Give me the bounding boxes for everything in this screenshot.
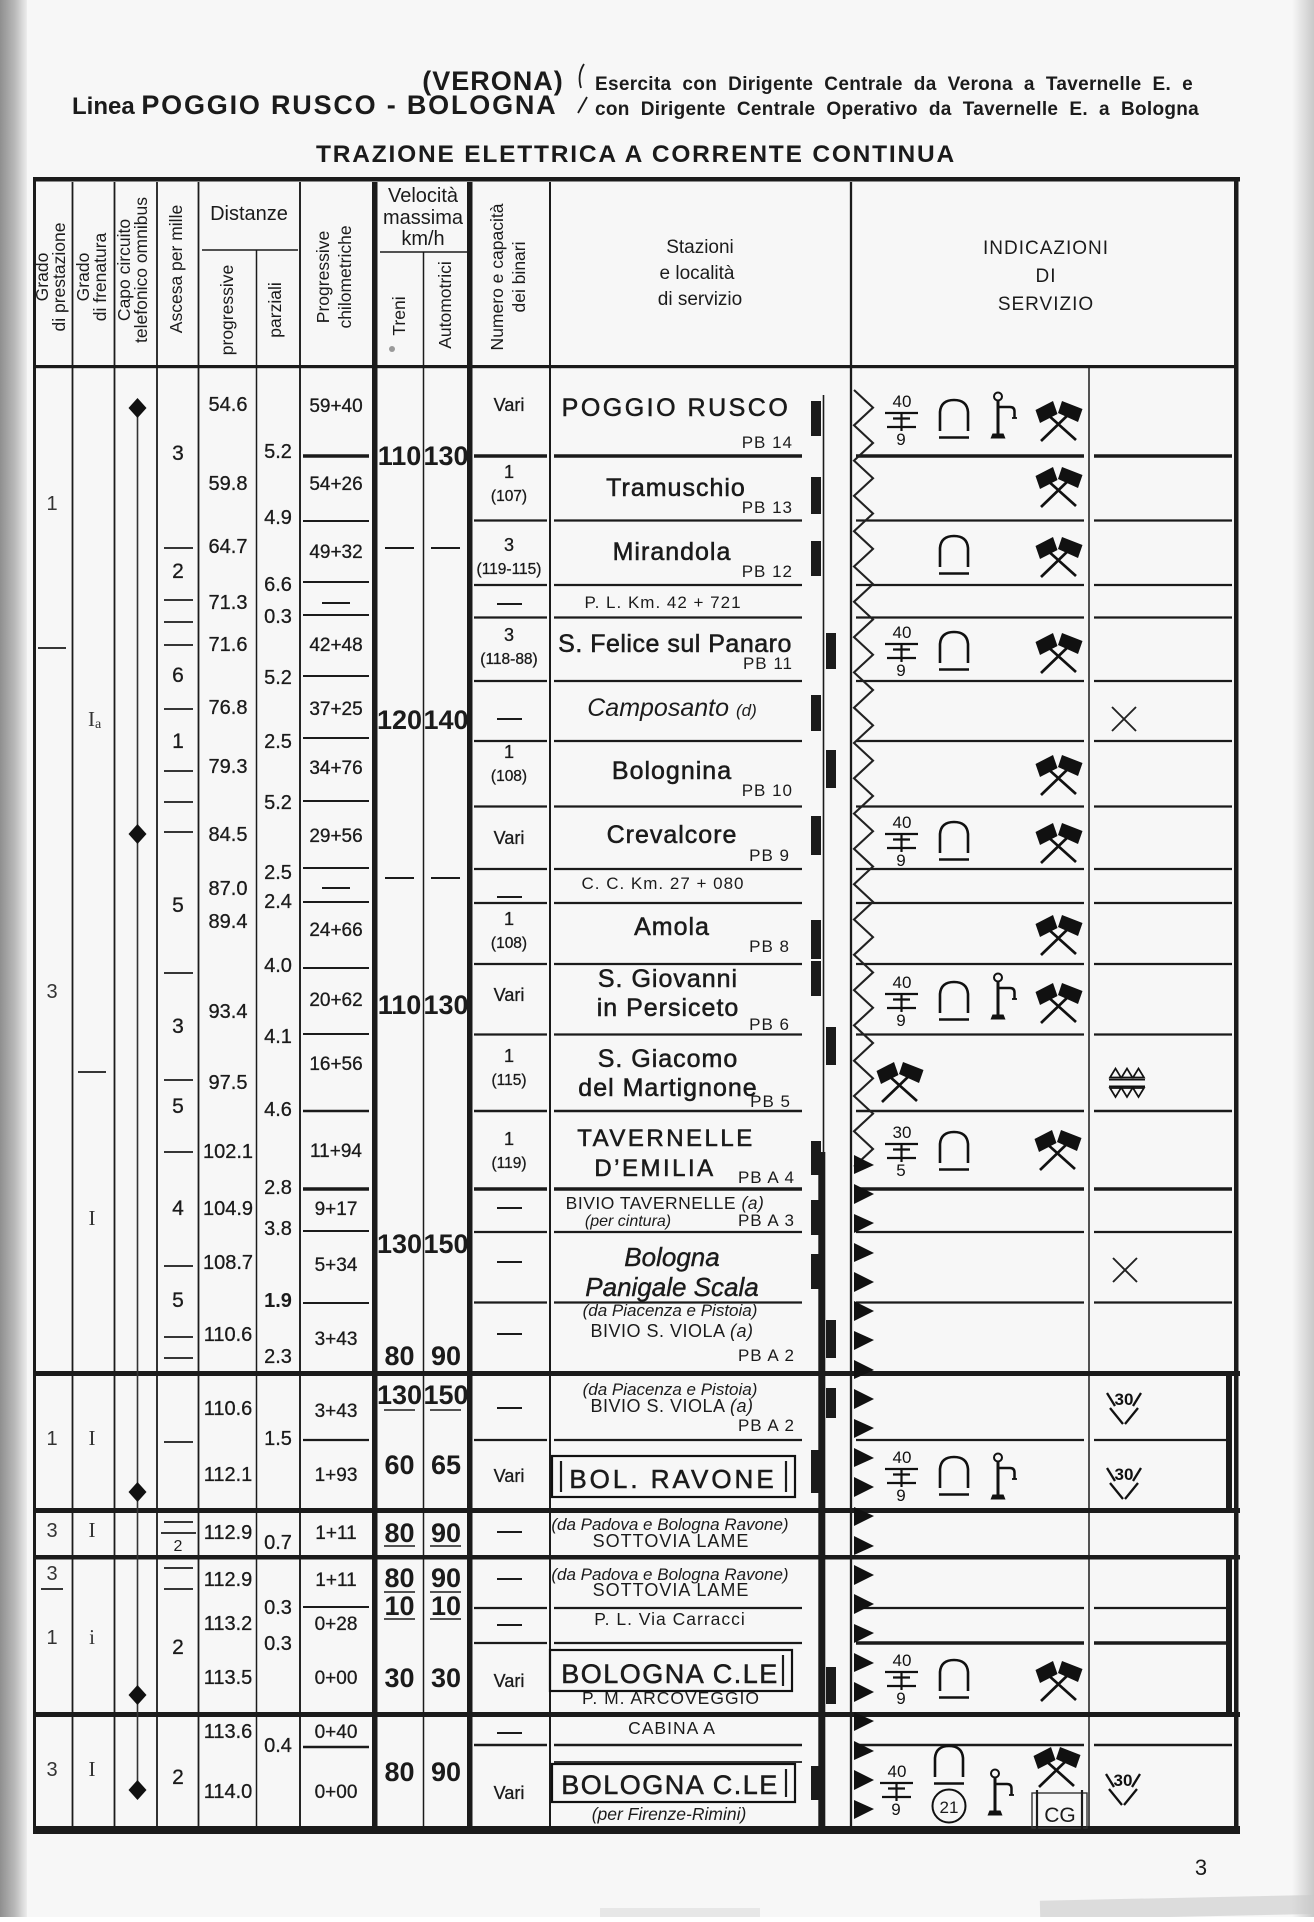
svg-text:2.8: 2.8 [264,1177,292,1199]
svg-text:Panigale Scala: Panigale Scala [585,1272,758,1302]
svg-text:20+62: 20+62 [309,990,362,1011]
svg-text:1.5: 1.5 [264,1428,292,1450]
svg-text:Stazioni: Stazioni [666,237,734,258]
svg-text:1+11: 1+11 [315,1570,356,1591]
svg-text:3: 3 [172,1015,184,1038]
svg-text:progressive: progressive [217,265,237,355]
svg-text:1: 1 [504,1129,514,1149]
svg-text:Vari: Vari [494,985,525,1005]
svg-text:90: 90 [431,1757,461,1787]
svg-text:112.9: 112.9 [204,1522,253,1544]
svg-text:0+28: 0+28 [315,1614,358,1635]
svg-text:2: 2 [172,560,184,583]
svg-text:S. Giacomo: S. Giacomo [598,1045,739,1073]
svg-text:34+76: 34+76 [309,758,362,779]
svg-text:3: 3 [46,1759,57,1781]
svg-text:dei binari: dei binari [509,241,529,312]
svg-text:(per Firenze-Rimini): (per Firenze-Rimini) [592,1804,747,1824]
svg-text:BOL. RAVONE: BOL. RAVONE [569,1464,776,1494]
svg-text:0.7: 0.7 [264,1532,292,1554]
svg-text:113.6: 113.6 [204,1721,253,1743]
svg-text:i: i [89,1625,95,1649]
svg-text:Numero e capacità: Numero e capacità [487,203,507,350]
svg-text:1: 1 [504,462,514,482]
svg-text:CABINA A: CABINA A [628,1718,716,1738]
svg-text:4.0: 4.0 [264,955,292,977]
svg-text:Vari: Vari [494,828,525,848]
svg-text:4.1: 4.1 [264,1026,292,1048]
svg-text:80: 80 [384,1341,414,1371]
svg-text:4: 4 [172,1197,184,1220]
svg-text:I: I [89,1426,96,1450]
svg-text:DI: DI [1036,266,1057,287]
svg-text:16+56: 16+56 [309,1054,362,1075]
svg-text:11+94: 11+94 [310,1141,362,1162]
svg-text:(da Piacenza e Pistoia): (da Piacenza e Pistoia) [583,1301,758,1320]
svg-text:130: 130 [423,990,468,1020]
svg-text:89.4: 89.4 [209,911,248,933]
svg-text:PB 13: PB 13 [742,498,793,517]
svg-text:PB A 2: PB A 2 [738,1346,795,1365]
svg-text:(107): (107) [491,488,527,505]
svg-text:114.0: 114.0 [204,1781,253,1803]
svg-text:5+34: 5+34 [315,1255,358,1276]
svg-text:Linea POGGIO RUSCO - BOLOGNA: Linea POGGIO RUSCO - BOLOGNA [72,90,557,120]
svg-text:P. M. ARCOVEGGIO: P. M. ARCOVEGGIO [582,1688,760,1708]
svg-text:PB A 3: PB A 3 [738,1211,795,1230]
svg-text:BIVIO S. VIOLA (a): BIVIO S. VIOLA (a) [590,1321,753,1341]
svg-text:Vari: Vari [494,395,525,415]
svg-text:3: 3 [172,442,184,465]
svg-text:BOLOGNA C.LE: BOLOGNA C.LE [561,1659,779,1689]
svg-text:Esercita con Dirigente Central: Esercita con Dirigente Centrale da Veron… [595,74,1193,95]
svg-text:71.3: 71.3 [209,592,248,614]
svg-text:37+25: 37+25 [309,699,362,720]
svg-text:PB 5: PB 5 [750,1092,791,1111]
svg-text:BOLOGNA C.LE: BOLOGNA C.LE [561,1770,779,1800]
svg-text:71.6: 71.6 [209,634,248,656]
svg-text:di prestazione: di prestazione [49,223,69,332]
svg-text:C. C. Km. 27 + 080: C. C. Km. 27 + 080 [581,874,744,893]
svg-text:INDICAZIONI: INDICAZIONI [983,238,1109,259]
svg-text:e località: e località [660,263,735,284]
svg-text:110: 110 [378,990,422,1020]
svg-text:S. Giovanni: S. Giovanni [598,965,738,993]
svg-text:90: 90 [431,1563,461,1593]
svg-text:1: 1 [172,730,184,753]
svg-text:49+32: 49+32 [309,542,362,563]
svg-text:SOTTOVIA LAME: SOTTOVIA LAME [593,1580,750,1600]
svg-text:5: 5 [172,1289,184,1312]
svg-text:2: 2 [172,1766,184,1789]
svg-text:10: 10 [431,1591,461,1621]
svg-text:0.4: 0.4 [264,1735,292,1757]
svg-text:PB A 4: PB A 4 [738,1168,795,1187]
svg-text:90: 90 [431,1518,461,1548]
svg-text:Velocità: Velocità [388,185,459,207]
svg-text:1: 1 [504,909,514,929]
svg-text:I: I [89,1518,96,1542]
svg-text:di servizio: di servizio [658,289,742,310]
svg-text:Vari: Vari [494,1671,525,1691]
svg-text:1: 1 [46,493,57,515]
svg-text:97.5: 97.5 [209,1072,248,1094]
svg-text:9+17: 9+17 [315,1199,358,1220]
svg-text:60: 60 [384,1450,414,1480]
svg-text:TAVERNELLE: TAVERNELLE [577,1125,755,1152]
svg-text:1+93: 1+93 [315,1465,358,1486]
svg-text:1+11: 1+11 [315,1523,356,1544]
svg-text:6.6: 6.6 [264,574,292,596]
svg-text:Vari: Vari [494,1466,525,1486]
svg-text:93.4: 93.4 [209,1001,248,1023]
svg-text:Progressive: Progressive [313,231,333,323]
svg-text:5.2: 5.2 [264,441,292,463]
svg-text:3+43: 3+43 [315,1401,358,1422]
svg-text:54+26: 54+26 [309,474,362,495]
svg-text:Distanze: Distanze [210,203,288,225]
svg-text:130: 130 [377,1380,422,1410]
svg-text:Mirandola: Mirandola [613,538,732,566]
svg-text:PB A 2: PB A 2 [738,1416,795,1435]
svg-text:P. L. Km. 42 + 721: P. L. Km. 42 + 721 [584,593,741,612]
svg-text:5: 5 [172,1095,184,1118]
svg-text:Camposanto (d): Camposanto (d) [587,694,756,722]
svg-text:113.5: 113.5 [204,1667,253,1689]
svg-text:3: 3 [46,1563,57,1585]
svg-text:BIVIO TAVERNELLE (a): BIVIO TAVERNELLE (a) [566,1193,765,1213]
svg-text:Automotrici: Automotrici [435,261,455,349]
svg-text:42+48: 42+48 [309,635,362,656]
svg-text:2: 2 [174,1538,183,1555]
svg-text:4.9: 4.9 [264,507,292,529]
svg-text:(119-115): (119-115) [477,561,542,578]
svg-text:130: 130 [377,1229,422,1259]
svg-text:(115): (115) [491,1072,526,1089]
svg-text:(per cintura): (per cintura) [585,1213,671,1230]
svg-text:SOTTOVIA LAME: SOTTOVIA LAME [593,1531,750,1551]
svg-text:3: 3 [46,981,57,1003]
svg-text:PB 10: PB 10 [742,781,793,800]
svg-text:I: I [89,1757,96,1781]
svg-text:80: 80 [384,1563,414,1593]
svg-text:79.3: 79.3 [209,756,248,778]
svg-text:2.3: 2.3 [264,1346,292,1368]
svg-text:Crevalcore: Crevalcore [607,821,738,849]
svg-text:2: 2 [172,1636,184,1659]
svg-text:120: 120 [377,705,422,735]
svg-text:2.4: 2.4 [264,891,292,913]
svg-text:110.6: 110.6 [204,1398,253,1420]
svg-text:I: I [89,1206,96,1230]
svg-text:PB 14: PB 14 [742,433,793,452]
svg-text:PB 6: PB 6 [749,1015,790,1034]
svg-text:in Persiceto: in Persiceto [597,994,740,1022]
svg-text:3: 3 [504,535,514,555]
svg-text:110: 110 [378,441,422,471]
svg-text:30: 30 [384,1663,414,1693]
svg-text:112.1: 112.1 [204,1464,253,1486]
svg-text:BIVIO S. VIOLA (a): BIVIO S. VIOLA (a) [590,1396,753,1416]
svg-text:PB 11: PB 11 [743,654,793,673]
svg-text:3+43: 3+43 [315,1329,358,1350]
svg-text:PB 12: PB 12 [742,562,793,581]
svg-text:parziali: parziali [265,282,285,337]
svg-text:P. L. Via Carracci: P. L. Via Carracci [594,1609,746,1629]
svg-text:CG: CG [1044,1804,1076,1827]
svg-text:chilometriche: chilometriche [335,225,355,328]
svg-text:150: 150 [423,1229,468,1259]
svg-text:5: 5 [172,894,184,917]
svg-text:4.6: 4.6 [264,1099,292,1121]
svg-text:(119): (119) [491,1155,526,1172]
svg-text:PB 9: PB 9 [749,846,790,865]
svg-text:64.7: 64.7 [209,536,248,558]
svg-text:Treni: Treni [389,296,409,335]
svg-text:1: 1 [504,742,514,762]
svg-text:3.8: 3.8 [264,1218,292,1240]
svg-text:84.5: 84.5 [209,824,248,846]
svg-text:Vari: Vari [494,1783,525,1803]
svg-text:1: 1 [46,1428,57,1450]
svg-text:Ascesa per mille: Ascesa per mille [166,205,186,333]
svg-text:telefonico omnibus: telefonico omnibus [131,197,151,343]
svg-text:65: 65 [431,1450,461,1480]
svg-text:(108): (108) [491,935,527,952]
svg-text:30: 30 [431,1663,461,1693]
svg-text:108.7: 108.7 [203,1252,253,1274]
svg-text:0+00: 0+00 [315,1782,358,1803]
svg-text:80: 80 [384,1757,414,1787]
svg-text:Bologna: Bologna [624,1242,719,1272]
svg-text:54.6: 54.6 [209,394,248,416]
svg-text:0.3: 0.3 [264,1633,292,1655]
svg-text:130: 130 [423,441,468,471]
svg-text:112.9: 112.9 [204,1569,253,1591]
svg-text:59+40: 59+40 [309,396,362,417]
svg-text:(108): (108) [491,768,527,785]
svg-text:(118-88): (118-88) [480,651,537,668]
svg-text:di frenatura: di frenatura [90,232,110,321]
svg-text:1: 1 [504,1046,514,1066]
svg-text:0.3: 0.3 [264,1597,292,1619]
svg-text:TRAZIONE ELETTRICA A CORREN: TRAZIONE ELETTRICA A CORRENTE CONTINUA [316,141,956,168]
svg-text:0+00: 0+00 [315,1668,358,1689]
svg-text:10: 10 [384,1591,414,1621]
svg-text:massima: massima [383,207,464,229]
svg-text:90: 90 [431,1341,461,1371]
svg-text:Bolognina: Bolognina [612,757,732,785]
svg-text:SERVIZIO: SERVIZIO [998,294,1094,315]
svg-text:150: 150 [423,1380,468,1410]
svg-text:km/h: km/h [401,228,444,250]
svg-text:110.6: 110.6 [204,1324,253,1346]
svg-text:2.5: 2.5 [264,731,292,753]
svg-text:29+56: 29+56 [309,826,362,847]
svg-text:3: 3 [46,1520,57,1542]
svg-text:59.8: 59.8 [209,473,248,495]
svg-text:24+66: 24+66 [309,920,362,941]
svg-text:5.2: 5.2 [264,792,292,814]
svg-text:5.2: 5.2 [264,667,292,689]
svg-text:0.3: 0.3 [264,606,292,628]
svg-text:76.8: 76.8 [209,697,248,719]
svg-text:D’EMILIA: D’EMILIA [594,1155,715,1182]
svg-text:0+40: 0+40 [315,1722,358,1743]
svg-text:del Martignone: del Martignone [578,1074,757,1102]
svg-text:Tramuschio: Tramuschio [606,474,746,502]
svg-text:6: 6 [172,664,184,687]
svg-text:21: 21 [940,1798,959,1817]
svg-text:104.9: 104.9 [203,1198,253,1220]
svg-text:Amola: Amola [634,913,710,941]
svg-text:PB 8: PB 8 [749,937,790,956]
svg-text:con Dirigente Centrale Operati: con Dirigente Centrale Operativo da Tave… [595,99,1199,120]
svg-text:80: 80 [384,1518,414,1548]
svg-text:140: 140 [423,705,468,735]
svg-text:87.0: 87.0 [209,878,248,900]
svg-text:3: 3 [504,625,514,645]
svg-text:113.2: 113.2 [204,1613,253,1635]
svg-text:2.5: 2.5 [264,862,292,884]
svg-text:POGGIO RUSCO: POGGIO RUSCO [562,394,791,422]
svg-text:3: 3 [1195,1855,1207,1880]
svg-text:1.9: 1.9 [264,1290,292,1312]
svg-text:102.1: 102.1 [203,1141,253,1163]
svg-text:1: 1 [46,1627,57,1649]
